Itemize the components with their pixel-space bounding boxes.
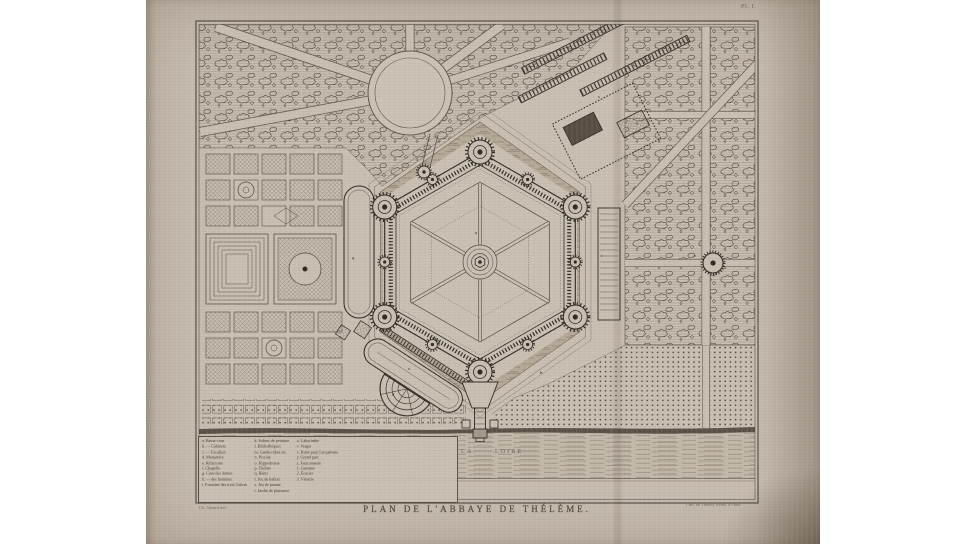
plan-area-label: b <box>540 371 542 376</box>
legend-box: a. Basse-cour b. — Cabinets c. — Escalie… <box>198 436 458 503</box>
plan-area-label: a <box>475 231 477 236</box>
river-label-loire: LOIRE <box>495 448 523 455</box>
credit-draughtsman: Ch. Gérard del. <box>199 506 227 511</box>
plan-area-label: q <box>352 256 354 261</box>
legend-entry: 3. Vénerie <box>297 478 338 483</box>
credit-lithographer: Lith. de Thierry frères, à Paris. <box>686 503 741 508</box>
legend-column-2: k. Salons de peinture l. Bibliothèques m… <box>255 439 290 494</box>
plan-area-label: t <box>601 254 602 259</box>
west-promenade-oval <box>344 186 374 318</box>
plan-area-label: r <box>577 39 579 44</box>
plan-area-label: s <box>598 95 600 100</box>
west-parterres <box>206 154 342 226</box>
screenshot: q t v b r s a o p LA LOIRE a. Basse-cour… <box>0 0 968 544</box>
plan-area-label: v <box>694 254 696 259</box>
plate-title: PLAN DE L'ABBAYE DE THÉLÈME. <box>196 504 758 514</box>
legend-entry: i. Fontaine des trois Grâces <box>202 483 247 488</box>
legend-column-3: u. Labyrinthe v. Verger x. Butte pour l'… <box>297 439 338 494</box>
grand-parc-east <box>625 27 758 345</box>
east-terrace-strip <box>598 208 620 320</box>
west-parterres-south <box>206 312 342 384</box>
scanned-plate: q t v b r s a o p LA LOIRE a. Basse-cour… <box>146 0 820 544</box>
river-label-la: LA <box>461 448 473 455</box>
plate-number: Pl. I. <box>741 3 756 10</box>
plan-area-label: p <box>392 392 394 397</box>
west-maze-squares <box>206 234 336 304</box>
plan-area-label: o <box>408 367 410 372</box>
legend-entry: t. Jardin de plaisance <box>255 489 290 494</box>
circular-pond <box>368 51 452 135</box>
legend-column-1: a. Basse-cour b. — Cabinets c. — Escalie… <box>202 439 247 494</box>
